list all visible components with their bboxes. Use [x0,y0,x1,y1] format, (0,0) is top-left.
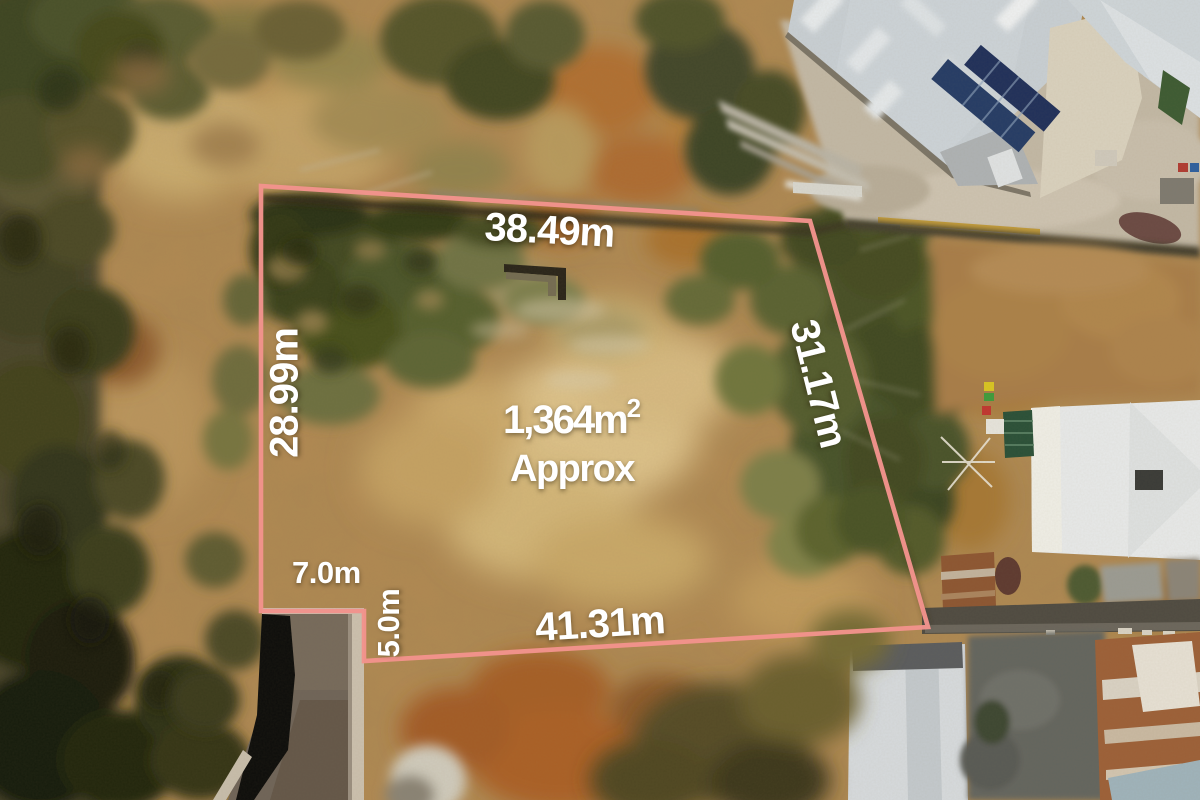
svg-text:41.31m: 41.31m [534,598,666,650]
svg-text:1,364m2: 1,364m2 [503,393,641,442]
svg-text:Approx: Approx [510,448,635,490]
svg-text:7.0m: 7.0m [292,555,361,590]
svg-text:5.0m: 5.0m [371,589,406,658]
svg-text:28.99m: 28.99m [263,328,307,458]
svg-text:38.49m: 38.49m [484,205,616,256]
